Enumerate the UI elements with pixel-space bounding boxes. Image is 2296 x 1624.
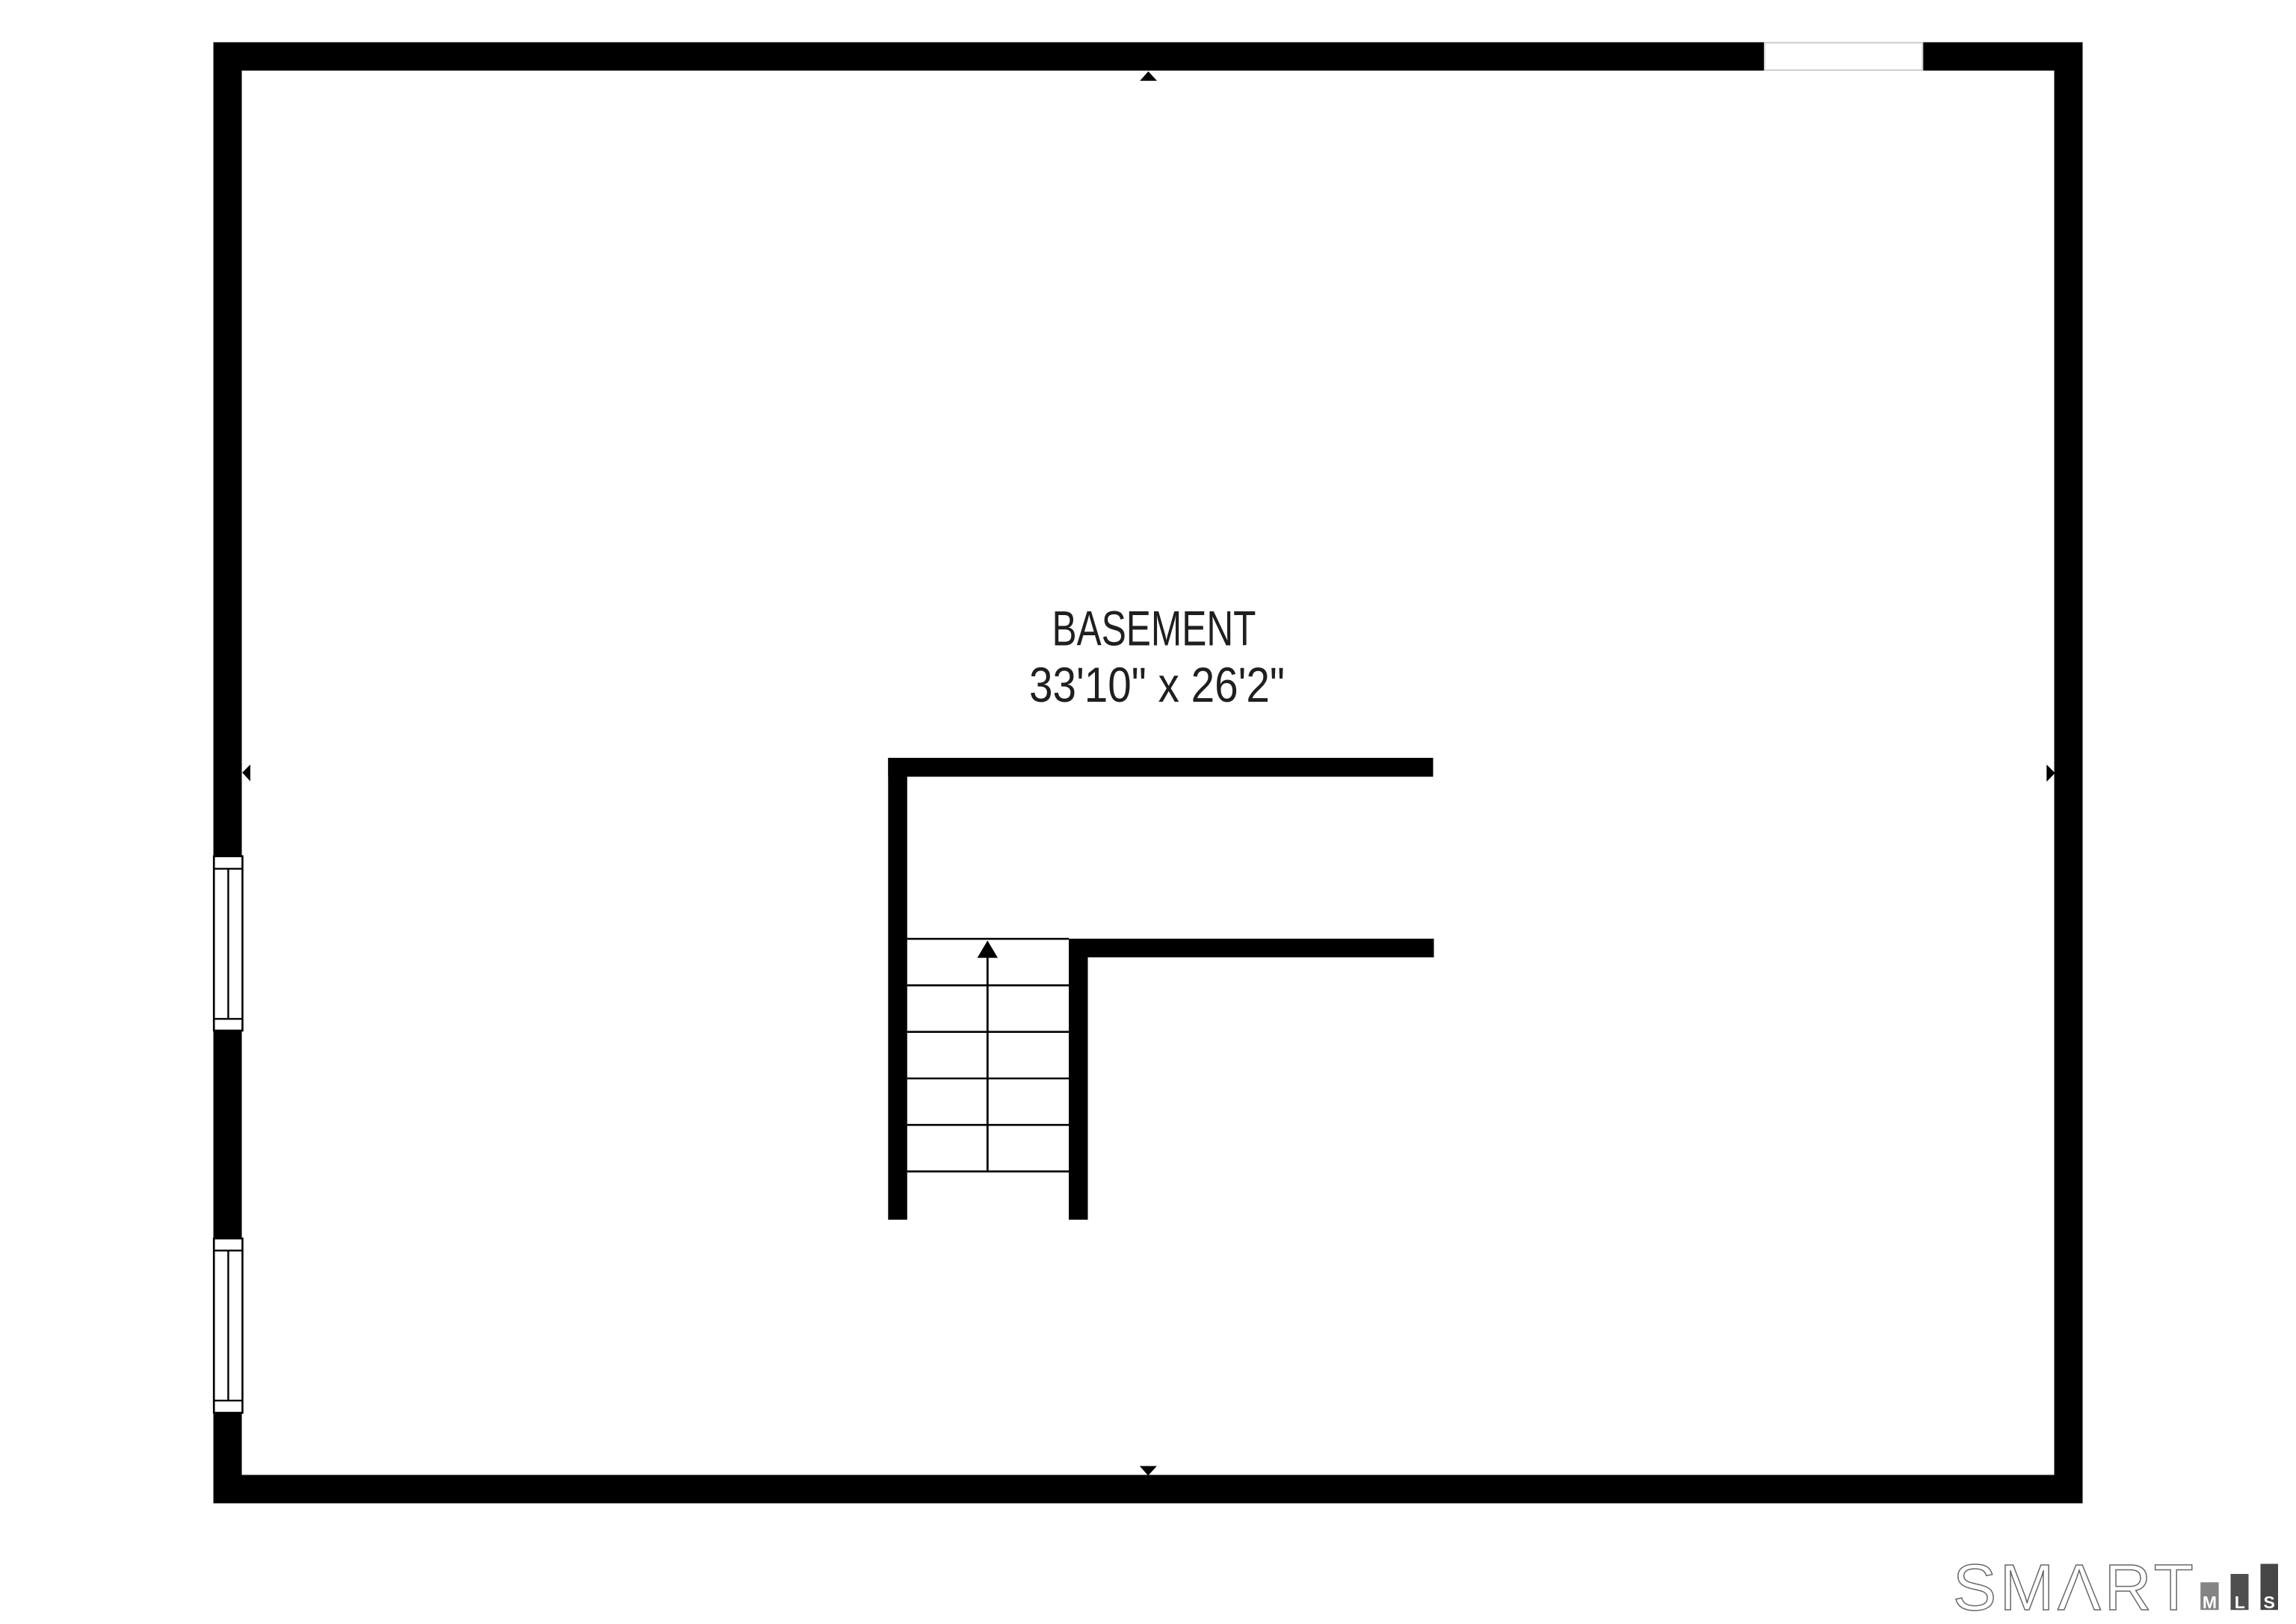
svg-text:M: M (2203, 1593, 2217, 1612)
svg-text:33'10" x 26'2": 33'10" x 26'2" (1029, 657, 1285, 712)
svg-text:L: L (2235, 1593, 2245, 1612)
svg-text:S: S (2264, 1593, 2275, 1612)
svg-text:BASEMENT: BASEMENT (1052, 601, 1256, 656)
svg-text:SMΛRT: SMΛRT (1953, 1552, 2197, 1624)
